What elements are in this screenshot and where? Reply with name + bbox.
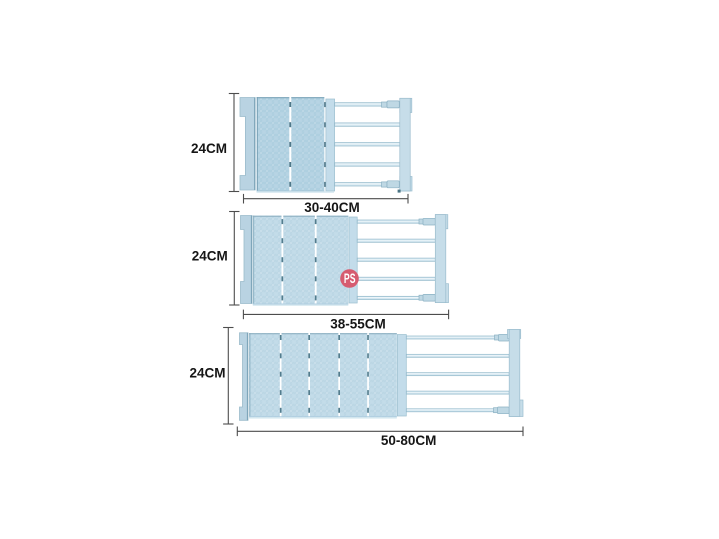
svg-text:24CM: 24CM — [189, 366, 225, 381]
svg-text:24CM: 24CM — [192, 249, 228, 264]
svg-text:30-40CM: 30-40CM — [304, 200, 360, 215]
svg-text:50-80CM: 50-80CM — [381, 433, 437, 448]
svg-text:PS: PS — [344, 272, 356, 286]
svg-text:38-55CM: 38-55CM — [330, 316, 386, 331]
svg-text:24CM: 24CM — [191, 141, 227, 156]
